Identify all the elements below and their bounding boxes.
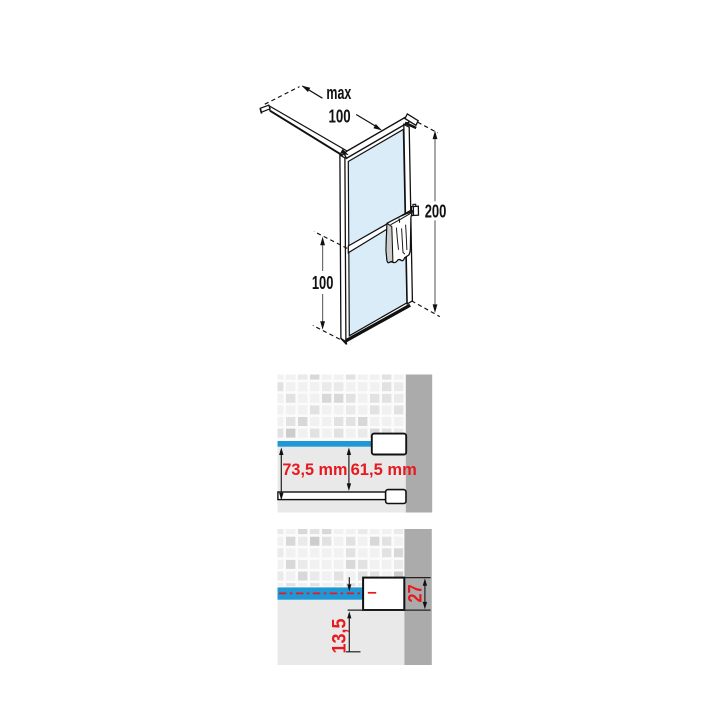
svg-text:27: 27 bbox=[404, 584, 426, 602]
svg-text:100: 100 bbox=[312, 272, 334, 293]
svg-text:73,5 mm: 73,5 mm bbox=[282, 461, 347, 479]
svg-text:61,5 mm: 61,5 mm bbox=[351, 461, 417, 479]
svg-text:200: 200 bbox=[425, 200, 447, 221]
svg-text:max: max bbox=[326, 82, 351, 103]
svg-text:100: 100 bbox=[329, 106, 351, 127]
svg-text:13,5: 13,5 bbox=[329, 618, 350, 653]
